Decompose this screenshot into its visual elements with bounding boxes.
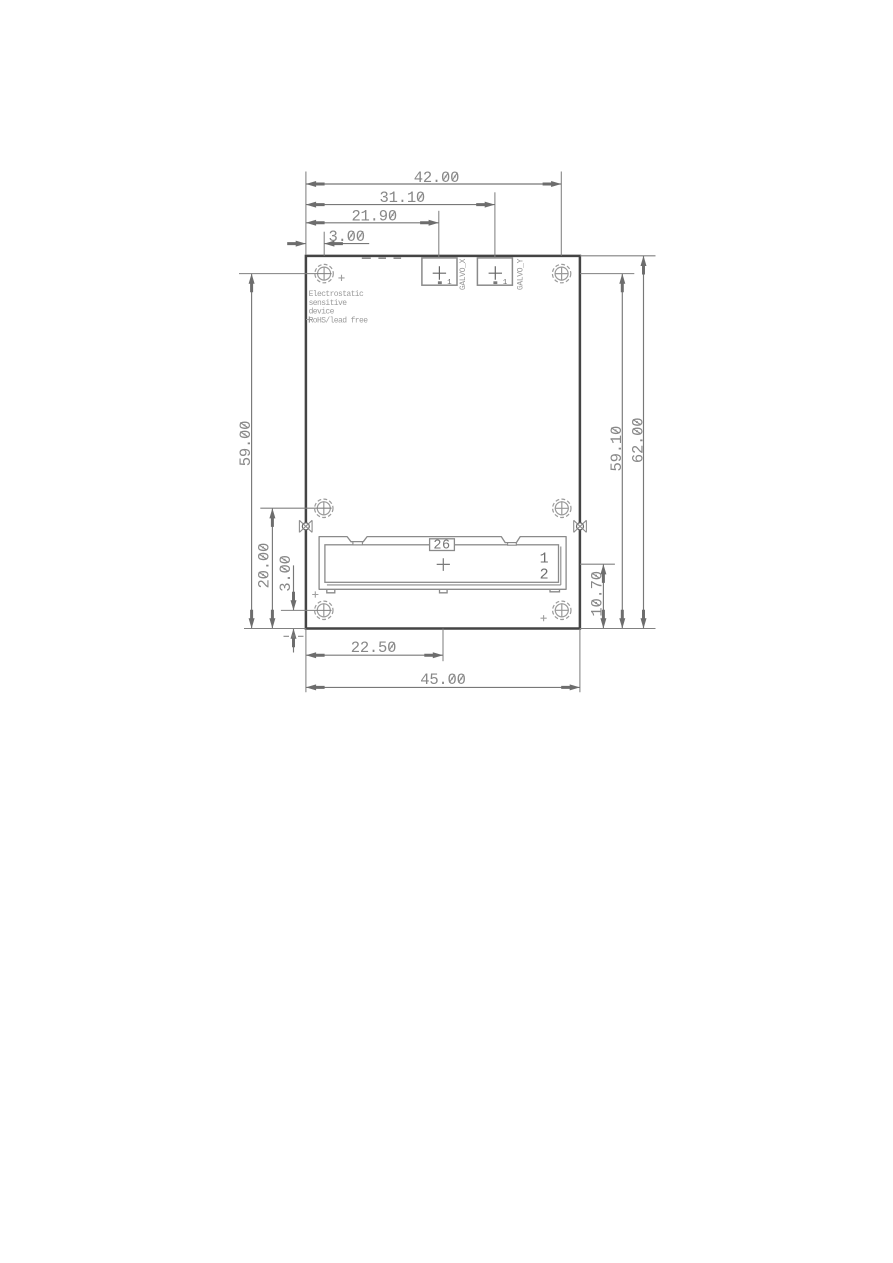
svg-text:20.00: 20.00 xyxy=(255,543,273,589)
svg-text:26: 26 xyxy=(433,538,450,553)
svg-text:62.00: 62.00 xyxy=(630,418,648,464)
svg-text:1: 1 xyxy=(503,279,508,287)
svg-text:31.10: 31.10 xyxy=(380,189,426,207)
svg-text:RoHS/lead free: RoHS/lead free xyxy=(309,316,369,325)
svg-text:21.90: 21.90 xyxy=(351,208,397,226)
svg-text:GALVO_Y: GALVO_Y xyxy=(517,258,526,290)
svg-text:59.00: 59.00 xyxy=(237,421,255,467)
svg-text:GALVO_X: GALVO_X xyxy=(459,258,468,290)
svg-text:2: 2 xyxy=(540,567,549,584)
svg-text:device: device xyxy=(309,308,335,317)
svg-text:sensitive: sensitive xyxy=(309,299,348,308)
svg-text:10.70: 10.70 xyxy=(588,571,606,617)
svg-text:1: 1 xyxy=(540,551,549,568)
svg-text:1: 1 xyxy=(447,279,452,287)
svg-text:59.10: 59.10 xyxy=(608,426,626,472)
svg-text:42.00: 42.00 xyxy=(414,169,460,187)
svg-text:22.50: 22.50 xyxy=(351,639,397,657)
svg-text:45.00: 45.00 xyxy=(420,671,466,689)
svg-text:Electrostatic: Electrostatic xyxy=(309,290,364,299)
